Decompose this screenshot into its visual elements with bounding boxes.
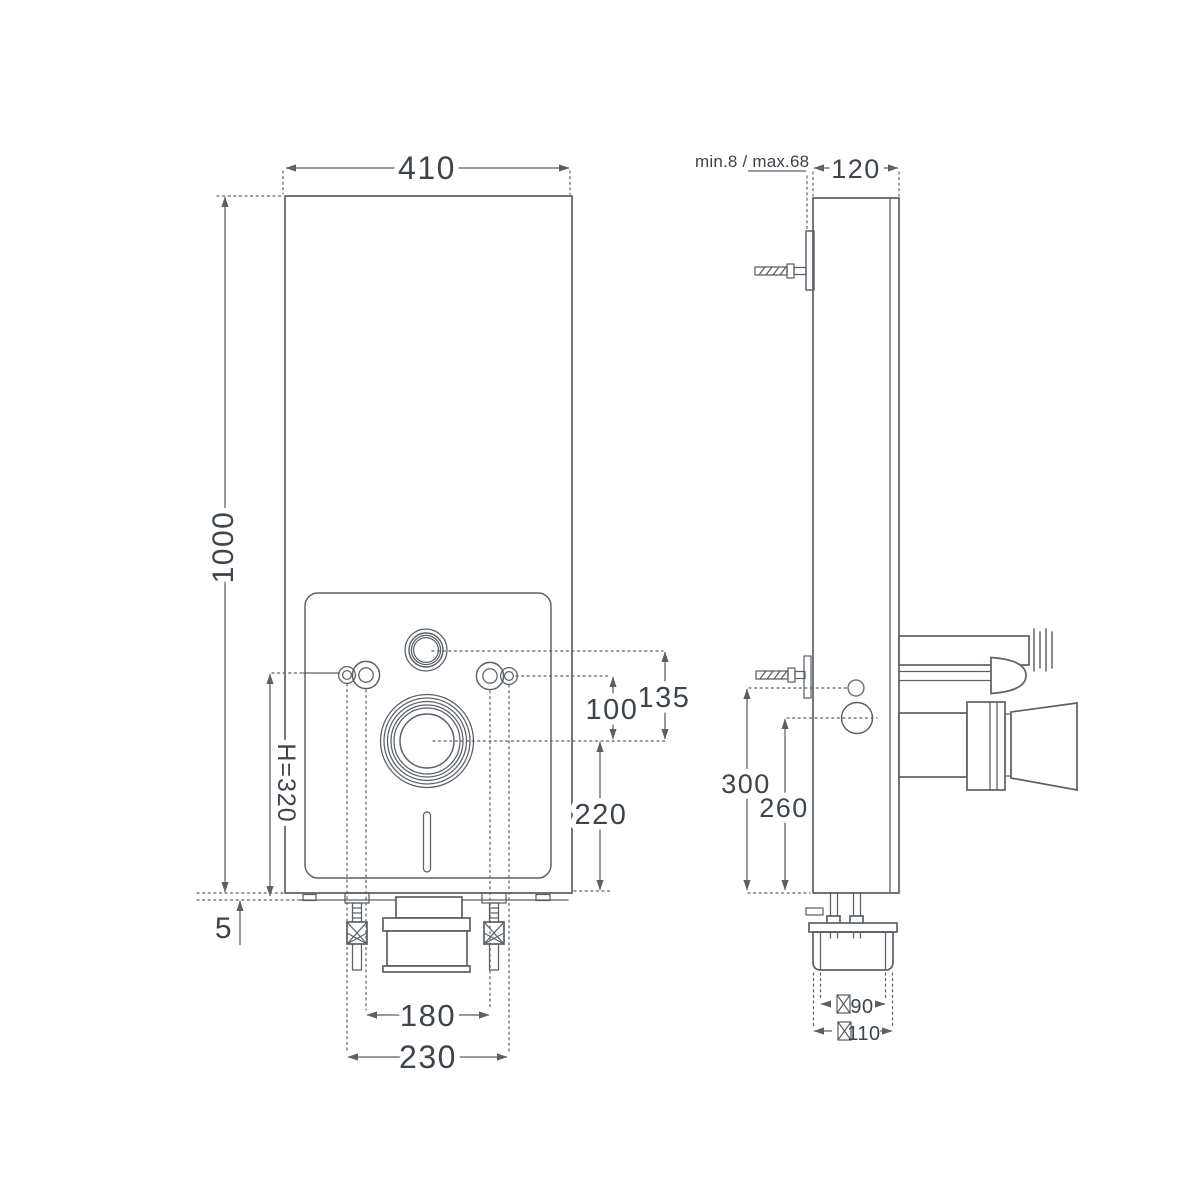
side-view: min.8 / max.68 120 300 260 90 (695, 152, 1077, 1045)
dim-fixing-spacing-label: 230 (399, 1039, 457, 1075)
drain-socket-front (383, 897, 470, 972)
right-floor-bolt (482, 893, 506, 970)
technical-drawing: 410 1000 H=320 5 135 100 220 180 230 (0, 0, 1200, 1200)
flush-pipe (899, 629, 1052, 671)
mid-wall-screw-icon (756, 656, 811, 698)
left-fixing-holes (339, 661, 380, 688)
side-dimensions: 120 300 260 90 (721, 154, 898, 1045)
dim-bolt-spacing-label: 180 (400, 998, 456, 1033)
sensor-slot (424, 812, 431, 872)
drain-outlet-side (899, 702, 1077, 790)
dim-inlet-offset-label: 135 (638, 682, 691, 714)
dim-outlet-height-label: 220 (575, 799, 628, 831)
bottom-connectors-side (806, 893, 897, 970)
dim-front-width-label: 410 (398, 150, 456, 186)
side-spigot-icon (806, 908, 823, 915)
dim-diameter-110-label: 110 (847, 1023, 880, 1045)
right-fixing-holes (476, 662, 517, 689)
dim-outlet-centre-height-label: 260 (759, 793, 809, 823)
dim-depth-label: 120 (831, 154, 881, 184)
socket-flange (809, 923, 897, 932)
front-panel-outline (285, 196, 572, 893)
water-inlet-port (405, 629, 447, 671)
cistern-frame-installation-drawing: 410 1000 H=320 5 135 100 220 180 230 (0, 0, 1200, 1200)
dim-base-gap-label: 5 (215, 912, 233, 945)
flush-outlet-port (381, 695, 474, 788)
side-body-outline (813, 198, 899, 893)
front-view: 410 1000 H=320 5 135 100 220 180 230 (197, 150, 690, 1075)
dim-fixing-height-label: H=320 (272, 743, 300, 822)
dim-front-height-label: 1000 (207, 511, 240, 584)
dim-diameter-90-label: 90 (850, 996, 873, 1018)
dim-outlet-diameter-110: 110 (814, 1019, 892, 1045)
side-extension-lines (748, 172, 899, 1026)
dim-outlet-diameter-90: 90 (821, 992, 885, 1018)
drain-cone-icon (1011, 703, 1077, 790)
dim-fixing-offset-label: 100 (586, 694, 639, 726)
wall-offset-label: min.8 / max.68 (695, 152, 809, 171)
top-wall-screw-icon (755, 264, 806, 278)
inlet-hole-side (848, 680, 864, 696)
